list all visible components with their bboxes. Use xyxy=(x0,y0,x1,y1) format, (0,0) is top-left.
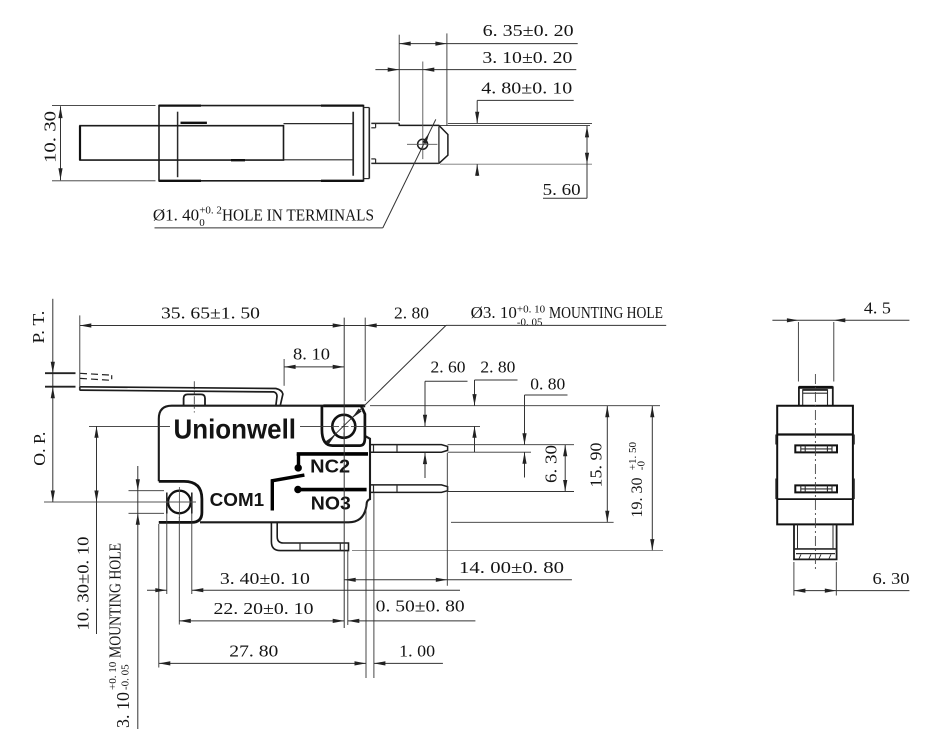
svg-text:-0: -0 xyxy=(636,461,648,471)
svg-text:2. 80: 2. 80 xyxy=(394,304,429,323)
svg-text:0. 50±0. 80: 0. 50±0. 80 xyxy=(376,597,465,616)
svg-text:4. 80±0. 10: 4. 80±0. 10 xyxy=(481,79,572,98)
svg-text:2. 60: 2. 60 xyxy=(431,358,466,377)
svg-text:COM1: COM1 xyxy=(210,490,264,510)
svg-text:Unionwell: Unionwell xyxy=(174,414,297,445)
svg-text:MOUNTING HOLE: MOUNTING HOLE xyxy=(549,303,663,322)
svg-text:19. 30: 19. 30 xyxy=(629,478,646,518)
svg-text:6. 30: 6. 30 xyxy=(873,569,910,588)
svg-text:0. 80: 0. 80 xyxy=(530,374,565,393)
svg-text:10. 30: 10. 30 xyxy=(41,111,60,163)
svg-text:6. 30: 6. 30 xyxy=(542,445,561,483)
svg-text:10. 30±0. 10: 10. 30±0. 10 xyxy=(74,537,93,631)
svg-text:27. 80: 27. 80 xyxy=(229,642,278,661)
svg-text:3. 40±0. 10: 3. 40±0. 10 xyxy=(220,569,310,588)
svg-text:22. 20±0. 10: 22. 20±0. 10 xyxy=(214,599,314,618)
svg-text:NO3: NO3 xyxy=(311,494,351,514)
svg-text:Ø1. 40: Ø1. 40 xyxy=(153,206,199,225)
svg-text:35. 65±1. 50: 35. 65±1. 50 xyxy=(161,304,260,323)
svg-text:HOLE IN TERMINALS: HOLE IN TERMINALS xyxy=(222,206,374,225)
svg-text:3. 10±0. 20: 3. 10±0. 20 xyxy=(482,48,572,67)
svg-text:1. 00: 1. 00 xyxy=(399,642,435,661)
svg-text:Ø3. 10: Ø3. 10 xyxy=(471,303,517,322)
svg-text:3. 10: 3. 10 xyxy=(113,692,133,728)
svg-text:2. 80: 2. 80 xyxy=(480,358,515,377)
svg-text:6. 35±0. 20: 6. 35±0. 20 xyxy=(483,21,574,40)
svg-text:O. P.: O. P. xyxy=(30,432,49,466)
svg-text:P. T.: P. T. xyxy=(29,311,48,344)
svg-text:+0. 2: +0. 2 xyxy=(199,205,222,217)
svg-text:15. 90: 15. 90 xyxy=(587,443,606,488)
svg-text:-0. 05: -0. 05 xyxy=(120,664,132,690)
svg-text:4. 5: 4. 5 xyxy=(864,299,891,318)
svg-text:5. 60: 5. 60 xyxy=(543,180,581,199)
svg-text:14. 00±0. 80: 14. 00±0. 80 xyxy=(459,558,564,577)
svg-text:-0. 05: -0. 05 xyxy=(517,316,543,328)
svg-text:MOUNTING HOLE: MOUNTING HOLE xyxy=(106,543,125,658)
svg-text:0: 0 xyxy=(199,217,205,229)
svg-text:+0. 10: +0. 10 xyxy=(107,661,119,690)
svg-text:8. 10: 8. 10 xyxy=(293,344,330,363)
svg-text:+0. 10: +0. 10 xyxy=(517,304,546,316)
